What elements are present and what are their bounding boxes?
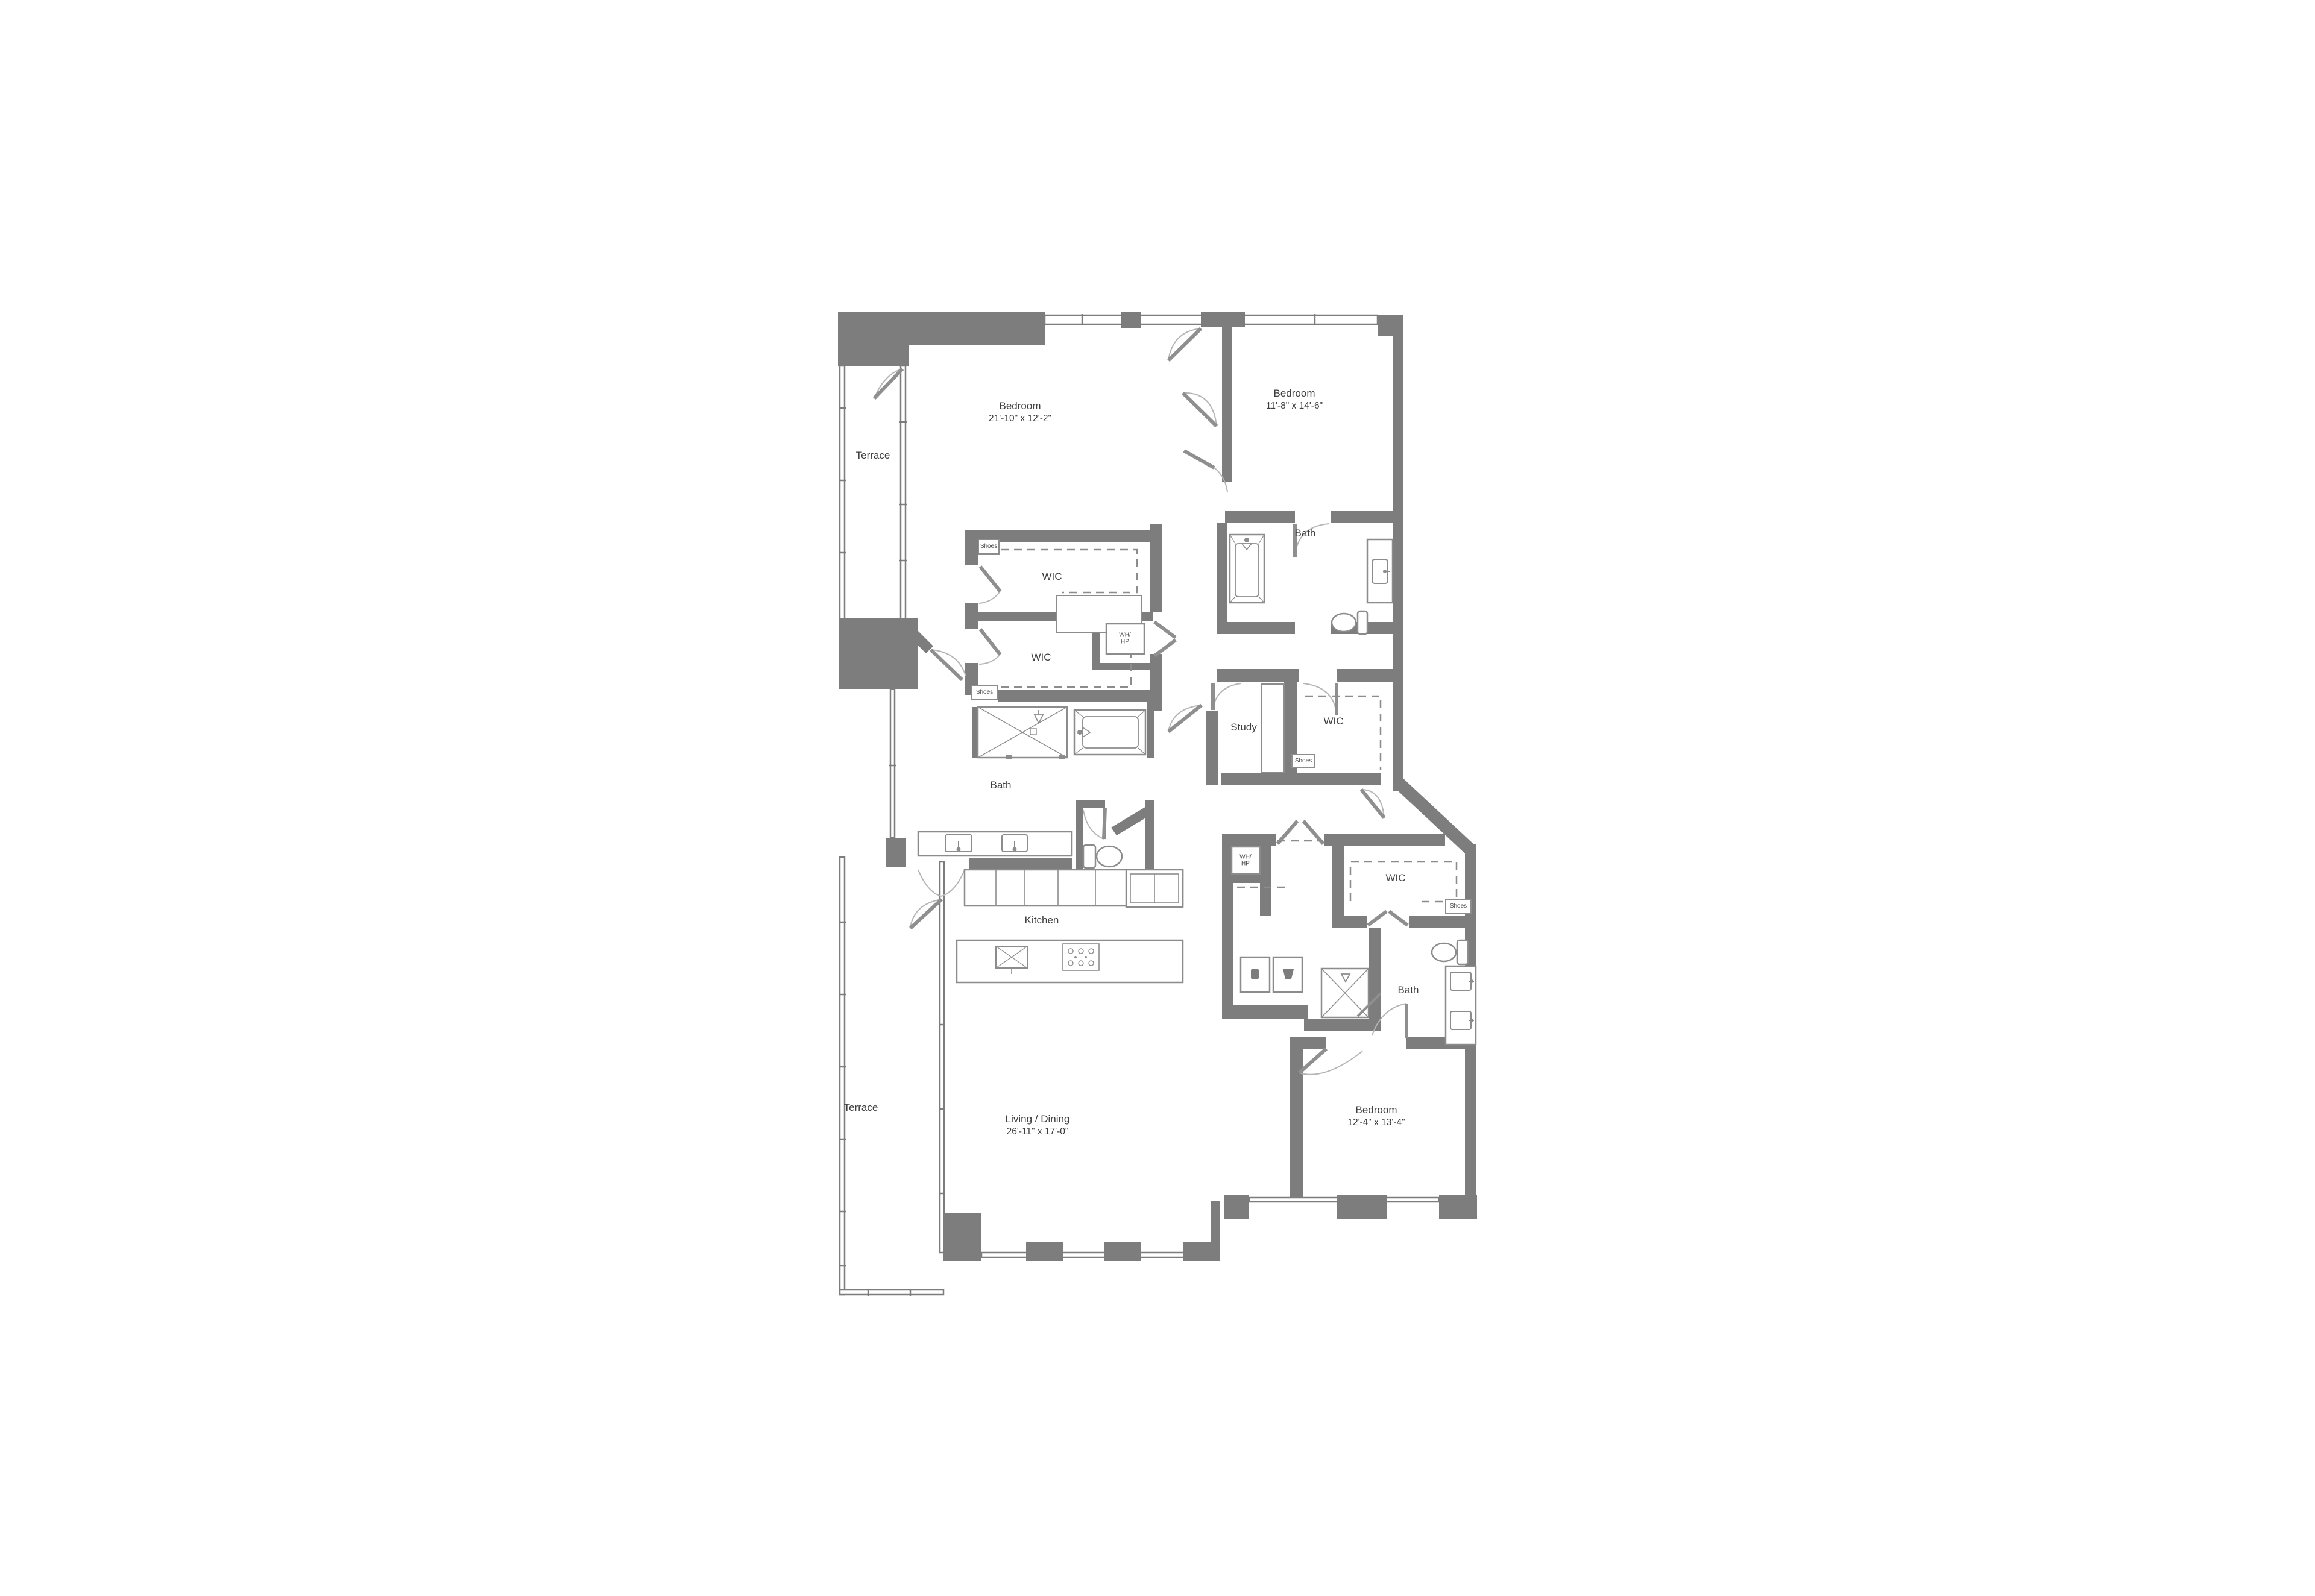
bath2-vanity [1367, 539, 1393, 603]
wall-top-pier-1 [1121, 312, 1141, 328]
living-dining-dims: 26'-11" x 17'-0" [1006, 1126, 1070, 1138]
master-tub [1074, 710, 1145, 755]
wall-wc-corner [1145, 800, 1154, 808]
master-vanity [918, 832, 1072, 856]
window-west-mid [890, 689, 895, 838]
room-label-living-dining: Living / Dining 26'-11" x 17'-0" [1006, 1113, 1070, 1138]
wall-vestibule-west [1260, 846, 1271, 916]
door-leaf-terrace-upper [874, 369, 902, 398]
wall-tub-stub [1147, 702, 1154, 758]
bedroom-2-dims: 11'-8" x 14'-6" [1266, 400, 1323, 412]
washer-dryer [1241, 957, 1302, 992]
door-leaf-wic-a [980, 567, 1000, 591]
wall-wd-south [1222, 1005, 1308, 1019]
wall-east-upper [1393, 327, 1403, 791]
door-arc-bath-kitchen-l [918, 870, 941, 896]
bedroom-3-name: Bedroom [1347, 1104, 1405, 1117]
sink [1450, 972, 1471, 990]
wall-bedroom2-west [1222, 327, 1232, 482]
rod-wic-hall [1305, 696, 1381, 770]
wall-top-pier-2 [1201, 312, 1245, 327]
windows-and-railings [840, 315, 1439, 1295]
door-leaf-wic3-b [1389, 911, 1408, 925]
wall-bottom-pier-c [1026, 1242, 1063, 1261]
room-label-study: Study [1230, 721, 1256, 734]
wall-west-pier [886, 838, 906, 867]
wall-bottom-left-pier [943, 1213, 981, 1261]
rod-wic-a [1001, 550, 1137, 592]
room-label-kitchen: Kitchen [1025, 914, 1059, 927]
master-shower [978, 707, 1067, 759]
shoes-label-2: Shoes [976, 690, 993, 696]
room-label-wic-b: WIC [1031, 651, 1051, 664]
bedroom-1-dims: 21'-10" x 12'-2" [989, 413, 1051, 425]
cooktop [1063, 944, 1099, 970]
wall-suite-north-e [1324, 834, 1445, 846]
bedroom-2-name: Bedroom [1266, 387, 1323, 400]
closet-label-whhp-2: WH/ HP [1239, 855, 1251, 867]
room-label-bedroom-3: Bedroom 12'-4" x 13'-4" [1347, 1104, 1405, 1129]
window-living-south [981, 1252, 1212, 1257]
shoes-label-1: Shoes [980, 544, 997, 550]
wall-suite-north-w [1222, 834, 1276, 846]
room-label-bath-2: Bath [1295, 527, 1316, 540]
door-leaf-bedroom2 [1184, 451, 1214, 468]
room-label-terrace-upper: Terrace [856, 449, 890, 462]
wall-wic-b-bottom [998, 690, 1153, 702]
study-closet [1262, 684, 1284, 773]
wall-whhp2-bottom [1232, 874, 1260, 883]
door-leaf-wic3-a [1368, 911, 1387, 925]
door-leaf-wc [1104, 808, 1105, 839]
wall-bottom-pier-b [1104, 1242, 1141, 1261]
room-label-bedroom-1: Bedroom 21'-10" x 12'-2" [989, 400, 1051, 425]
wall-bottom-right-corner [1439, 1195, 1477, 1219]
wall-kitchen-north [969, 858, 1072, 870]
wall-wic3-south-e [1409, 916, 1476, 928]
shoes-label-3: Shoes [1295, 758, 1312, 765]
wall-study-west [1206, 711, 1218, 785]
wall-bath3-west [1369, 928, 1381, 1031]
door-arc-wic-hall [1303, 683, 1337, 715]
wall-bedroom2-south-w [1225, 511, 1295, 523]
wall-wic-a-left-upper [965, 530, 978, 565]
room-label-bath-master: Bath [991, 779, 1012, 792]
floor-plan-page: Bedroom 21'-10" x 12'-2" Bedroom 11'-8" … [0, 0, 2315, 1596]
door-leaf-wic-b [980, 629, 1000, 655]
wall-bedroom2-south-e [1331, 511, 1393, 523]
railing-terrace-lower-bottom [840, 1290, 943, 1295]
wall-terrace-mid-block [839, 618, 918, 689]
washer-icon [1251, 969, 1259, 979]
wall-whhp1-bottom [1092, 663, 1153, 670]
bath2-toilet [1332, 611, 1367, 634]
door-arc-wic-a [979, 591, 1000, 603]
door-arc-wc [1083, 810, 1104, 839]
wall-wic3-south-w [1332, 916, 1367, 928]
wall-top-left-block [838, 312, 1045, 345]
wall-wic-b-left-upper [965, 621, 978, 629]
tub-faucet [1077, 730, 1082, 735]
bedroom-3-dims: 12'-4" x 13'-4" [1347, 1117, 1405, 1129]
floor-plan-drawing [0, 0, 2315, 1596]
wall-shower-stub [972, 707, 978, 758]
wall-bottom-pier-bed3 [1337, 1195, 1387, 1219]
wall-wc-east [1145, 808, 1154, 870]
wall-shower3-south [1304, 1019, 1373, 1031]
wall-hall-east-upper [1217, 523, 1227, 634]
wall-bottom-pier-a [1183, 1242, 1220, 1261]
wall-top-left-step [838, 345, 909, 366]
wall-wic-hall-north [1337, 669, 1393, 682]
master-toilet [1083, 845, 1122, 868]
room-label-bedroom-2: Bedroom 11'-8" x 14'-6" [1266, 387, 1323, 412]
living-dining-name: Living / Dining [1006, 1113, 1070, 1126]
door-arc-study [1213, 683, 1241, 710]
door-leaf-vestibule [931, 650, 962, 680]
door-arc-wic-b [979, 655, 1000, 664]
bath3-toilet [1432, 940, 1468, 964]
door-leaf-bedroom1 [1183, 393, 1217, 426]
railing-terrace-upper [840, 366, 845, 619]
wall-study-south [1221, 773, 1381, 785]
shoes-label-4: Shoes [1450, 903, 1467, 910]
wall-wc-west [1076, 800, 1083, 880]
bedroom-1-name: Bedroom [989, 400, 1051, 413]
glass-terrace-upper [901, 366, 906, 619]
sink [1450, 1011, 1471, 1029]
shower-drain [1030, 729, 1036, 735]
kitchen-island [957, 940, 1183, 982]
door-leaf-whhp1-a [1154, 622, 1176, 638]
wall-wic3-west [1332, 846, 1344, 916]
closet-label-whhp-1: WH/ HP [1119, 633, 1130, 646]
room-label-wic-a: WIC [1042, 570, 1062, 583]
room-label-bath-3: Bath [1398, 984, 1419, 997]
kitchen-counter [965, 870, 1183, 907]
wall-study-north [1221, 669, 1299, 682]
room-label-wic-hall: WIC [1323, 715, 1343, 728]
wall-wc-north-stub [1083, 800, 1105, 808]
room-label-terrace-lower: Terrace [844, 1101, 878, 1114]
bath3-vanity [1446, 966, 1476, 1045]
room-label-wic-bed3: WIC [1385, 872, 1405, 885]
bath2-tub [1230, 535, 1264, 603]
wall-bath2-south-w [1225, 622, 1295, 634]
wall-bottom-pier-step [1224, 1195, 1249, 1219]
door-leaf-whhp1-b [1154, 640, 1176, 656]
wall-hall-west-upper [1150, 524, 1162, 612]
